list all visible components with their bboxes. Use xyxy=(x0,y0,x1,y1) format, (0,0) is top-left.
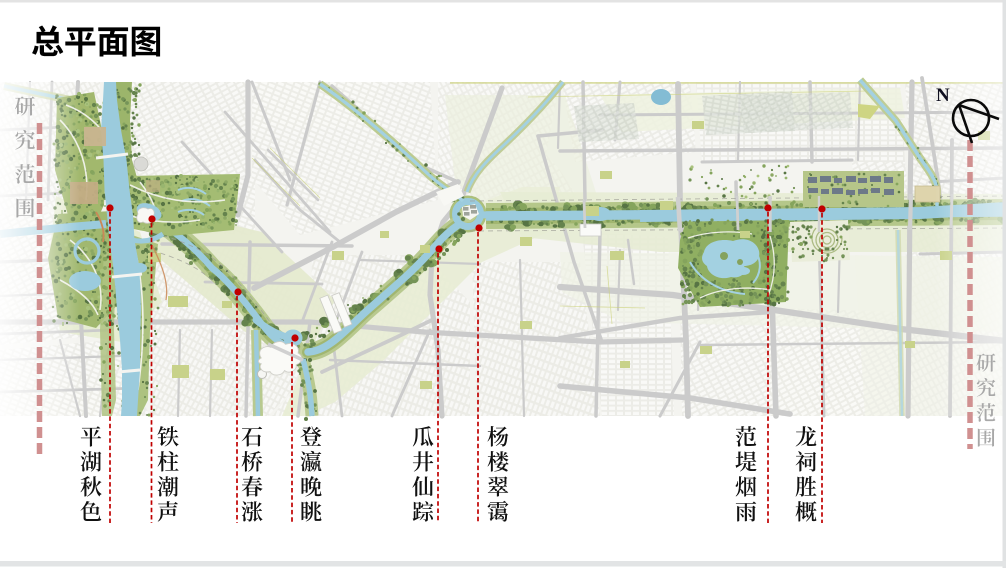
svg-text:N: N xyxy=(936,85,950,106)
